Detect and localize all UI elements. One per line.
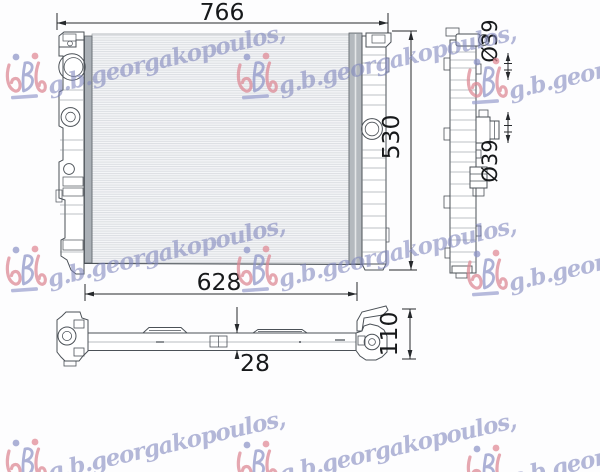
dimension-label: 28	[240, 349, 270, 377]
dimension-label: 530	[377, 115, 405, 160]
technical-drawing-page: 766 530 628	[0, 0, 600, 472]
dimension-upper-port: Ø39	[478, 19, 512, 80]
dimension-label: 766	[200, 0, 245, 26]
dimension-label: 110	[375, 312, 403, 357]
front-view	[56, 32, 391, 274]
bottom-view	[57, 306, 388, 366]
dimension-label: Ø39	[478, 139, 502, 182]
dimension-overall-depth: 110	[375, 309, 416, 359]
dimension-label: 628	[197, 268, 242, 296]
dimension-core-width: 628	[85, 268, 357, 301]
dimension-label: Ø39	[478, 19, 502, 62]
dimension-overall-width: 766	[57, 0, 388, 33]
radiator-diagram: 766 530 628	[0, 0, 600, 472]
